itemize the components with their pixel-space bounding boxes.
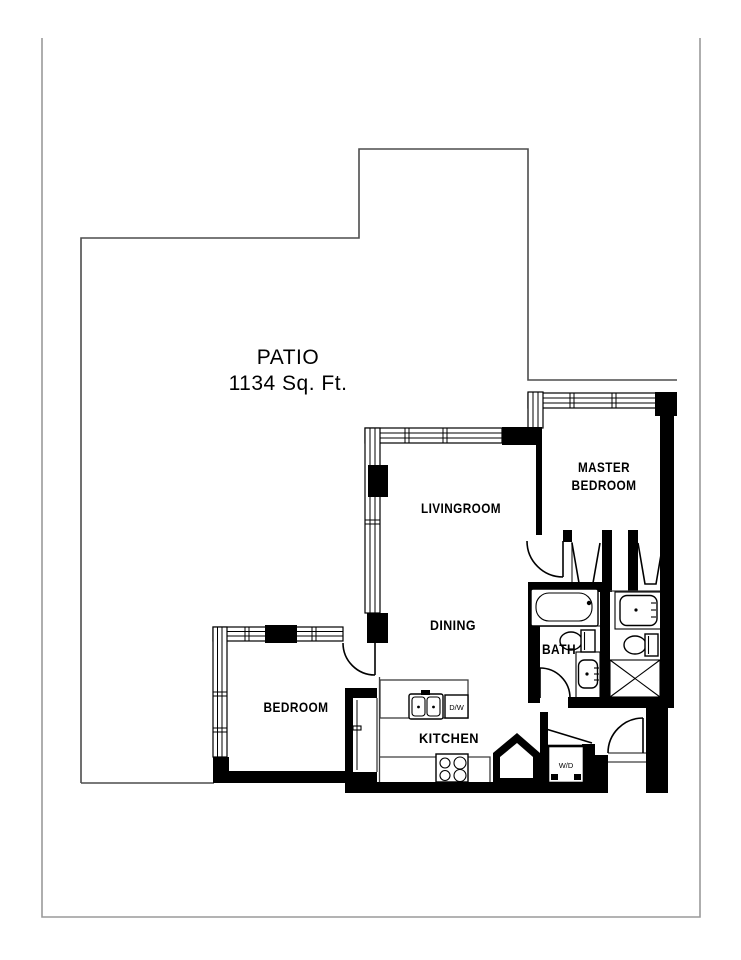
closet-bifold-door-right — [638, 543, 663, 584]
floor-plan-drawing: D/W W/D — [0, 0, 741, 960]
washer-dryer-label: W/D — [559, 761, 574, 770]
patio-area: 1134 Sq. Ft. — [229, 372, 348, 395]
room-label-master-line1: MASTER — [578, 459, 630, 475]
room-label-dining: DINING — [430, 617, 476, 633]
bedroom-door-swing — [343, 643, 375, 675]
entry-door-swing — [608, 718, 643, 753]
room-label-bedroom: BEDROOM — [264, 699, 329, 715]
shower-icon — [610, 660, 660, 697]
bath-sink-icon — [576, 652, 600, 698]
bath-door-swing — [540, 668, 570, 698]
laundry-closet-door — [546, 729, 592, 743]
stove-icon — [436, 754, 468, 782]
master-bedroom-door-swing — [527, 541, 563, 577]
dishwasher-label: D/W — [449, 703, 465, 712]
ensuite-toilet-icon — [624, 634, 658, 656]
ensuite-sink-icon — [615, 592, 662, 629]
kitchen-sink-icon — [409, 690, 443, 719]
closet-bifold-door-left — [572, 543, 600, 583]
bathtub-icon — [531, 589, 598, 626]
room-label-bath: BATH — [542, 641, 576, 657]
room-label-livingroom: LIVINGROOM — [421, 500, 501, 516]
doors — [343, 541, 663, 753]
washer-dryer-icon: W/D — [548, 746, 584, 783]
room-label-master-line2: BEDROOM — [572, 477, 637, 493]
patio-title: PATIO — [257, 346, 319, 369]
floor-plan-page: D/W W/D — [0, 0, 741, 960]
dishwasher-icon: D/W — [445, 695, 468, 718]
room-label-kitchen: KITCHEN — [419, 730, 479, 746]
